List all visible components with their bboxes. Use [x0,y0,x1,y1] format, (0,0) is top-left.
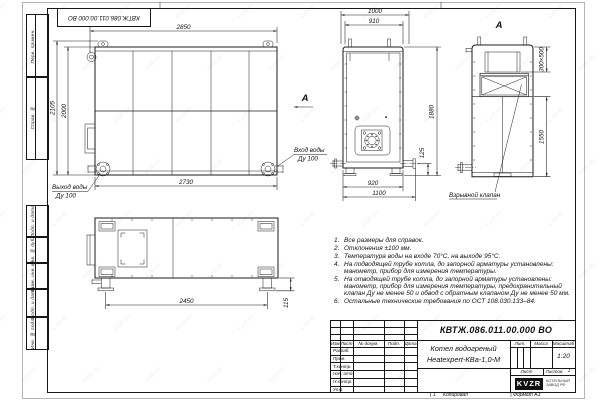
col-doc: № докум. [353,341,384,346]
format-label: Формат А3 [513,392,540,398]
dim-front-right-small: 125 [419,147,426,158]
view-a-left-pipe [455,163,476,173]
note-item: 5.На отводящей трубе котла, до запорной … [334,276,572,298]
note-item: 2.Отклонения ±100 мм. [334,245,572,252]
margin-stamp-label: Перв. примен. [30,29,35,63]
note-item: 4.На подводящей трубе котла, до запорной… [334,261,572,276]
dim-front-bottom2: 1100 [372,190,386,197]
sheets-label: Листов [543,369,565,374]
stamp-divider [35,15,36,77]
dim-side-left-outer: 2105 [50,101,57,117]
view-plan: 2450 115 [87,218,295,309]
dim-front-top: 1000 [368,8,383,15]
sig-row-prov: Пров. [333,356,355,361]
scale-label: Масштаб [552,341,575,346]
burner-plate [355,126,390,155]
scale-value: 1:20 [552,347,575,367]
dim-view-a-duct: 300×500 [539,47,546,72]
margin-stamp-label: Инв. № подл. [30,317,35,349]
sig-row-tkontr: Т.контр. [333,364,355,369]
inlet-label-line1: Вход воды [294,146,325,154]
dim-side-left-inner: 2000 [61,104,68,120]
outlet-flange [88,162,110,176]
view-side: 2850 2105 2000 2730 Выход воды Ду 100 [50,24,284,200]
col-data: Дата [404,341,417,346]
col-list: Лист [340,341,353,346]
stamp-divider [35,206,36,237]
view-a: А [449,20,551,199]
dim-view-a-height: 1550 [539,130,546,145]
stamp-divider [35,317,36,349]
outlet-label-line2: Ду 100 [55,193,76,200]
stamp-divider [35,289,36,317]
dim-side-bottom: 2730 [178,179,194,186]
note-text: На подводящей трубе котла, до запорной а… [344,261,572,276]
logo-caption-line1: КОТЕЛЬНЫЙ [546,379,570,383]
sig-row-nkontr: Н.контр. [333,379,355,384]
product-name-line1: Котел водогреный [430,344,496,353]
kvzr-logo: KVZR [515,378,543,390]
dim-plan-height: 115 [283,297,290,308]
title-block: КВТЖ.086.011.00.000 ВО Изм. Лист № докум… [330,320,576,393]
note-text: Остальные технические требования по ОСТ … [344,298,572,305]
view-direction-arrow: А [294,93,313,107]
product-name: Котел водогреный Heatexpert-КВа-1,0-М [417,343,510,367]
margin-stamp-vzam-inv: Взам. инв. № [26,262,49,290]
sig-row-razrab: Разраб. [333,348,355,353]
inlet-flange [261,162,283,176]
margin-stamp-label: Подп. и дата [30,205,35,237]
dim-front-right: 1880 [429,105,436,120]
sheet-label: Лист [510,369,543,374]
sig-row-nachotd: Нач. отд. [333,371,355,376]
front-left-pipe [330,159,347,168]
zone-mark: 1 [433,392,436,398]
margin-stamp-sprav-no: Справ. № [26,76,49,160]
stamp-divider [35,77,36,159]
sheets-value: 1 [563,368,575,375]
drawing-sheet: 2850 2105 2000 2730 Выход воды Ду 100 А [0,0,600,400]
doc-number-stamp: КВТЖ.086.011.00.000 ВО [57,8,151,27]
note-text: Все размеры для справок. [344,237,572,244]
col-izm: Изм. [331,341,340,346]
doc-number-stamp-text: КВТЖ.086.011.00.000 ВО [68,14,140,21]
note-number: 1. [334,237,344,244]
margin-stamp-label: Справ. № [30,106,35,129]
note-text: Отклонения ±100 мм. [344,245,572,252]
titleblock-doc-number: КВТЖ.086.011.00.000 ВО [417,321,575,340]
dim-front-top2: 910 [369,18,380,25]
margin-stamp-label: Подп. и дата [30,287,35,319]
margin-stamp-perv-primen: Перв. примен. [26,14,49,78]
inlet-label-line2: Ду 100 [297,156,318,163]
margin-stamp-podp-data-2: Подп. и дата [26,288,49,318]
product-name-line2: Heatexpert-КВа-1,0-М [427,355,500,364]
note-text: Температура воды на входе 70°С, на выход… [344,253,572,260]
view-direction-label: А [301,93,309,104]
note-number: 6. [334,298,344,305]
dim-front-bottom: 920 [368,180,379,187]
note-item: 3.Температура воды на входе 70°С, на вых… [334,253,572,260]
valve-label: Взрывной клапан [449,191,501,199]
note-item: 6.Остальные технические требования по ОС… [334,298,572,305]
logo-caption: КОТЕЛЬНЫЙ ЗАВОД РФ [546,379,575,388]
mass-label: Масса [530,341,552,346]
note-number: 3. [334,253,344,260]
note-number: 2. [334,245,344,252]
stamp-divider [35,263,36,289]
note-number: 4. [334,261,344,276]
dim-plan-length: 2450 [178,298,194,305]
logo-caption-line2: ЗАВОД РФ [546,383,565,387]
view-front: 1000 910 1880 125 920 1100 Вход воды Ду … [277,8,442,201]
dim-side-top: 2850 [175,24,191,31]
explosion-valve [480,73,528,96]
sig-row-utv: Утв. [333,387,355,392]
col-podp: Подп. [384,341,404,346]
copied-label: Копировал [443,392,468,398]
note-number: 5. [334,276,344,298]
outlet-label-line1: Выход воды [52,183,88,191]
note-item: 1.Все размеры для справок. [334,237,572,244]
note-text: На отводящей трубе котла, до запорной ар… [344,276,572,298]
margin-stamp-inv-podl: Инв. № подл. [26,316,49,350]
view-a-label: А [495,20,503,31]
lit-label: Лит. [510,341,530,346]
stamp-divider [35,237,36,263]
technical-notes: 1.Все размеры для справок. 2.Отклонения … [334,237,572,306]
